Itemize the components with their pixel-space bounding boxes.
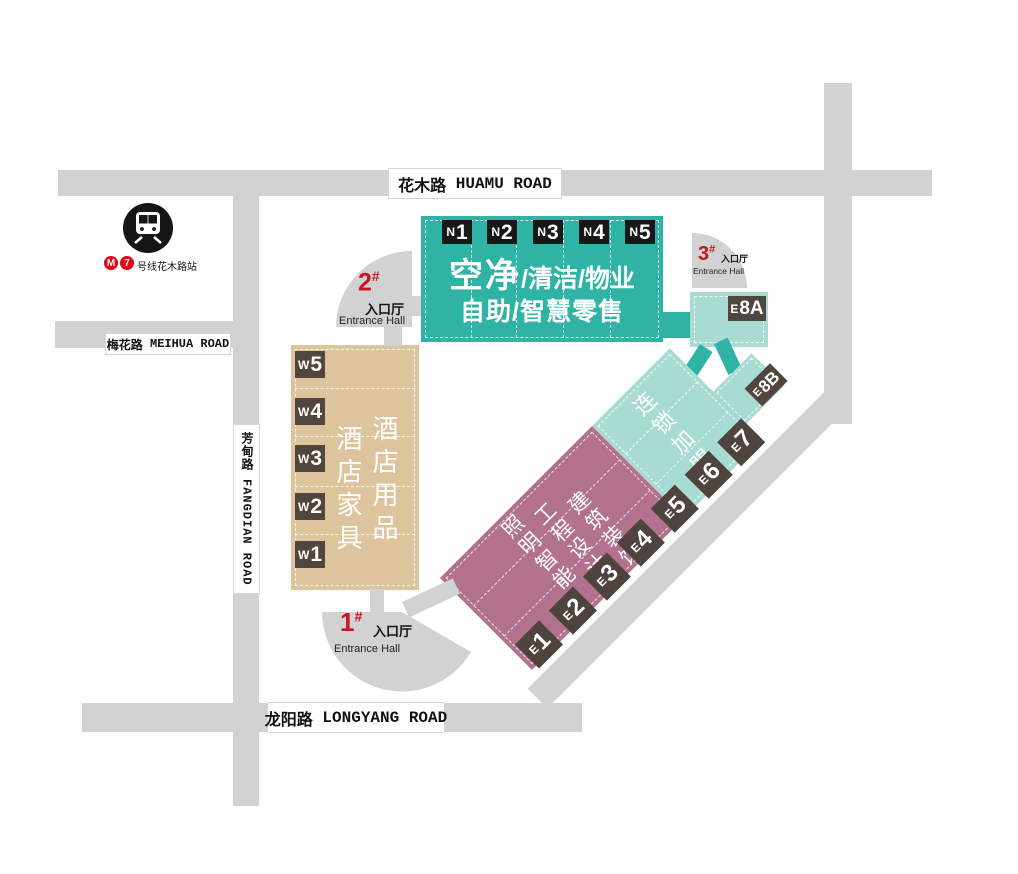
badge-n4: N4 bbox=[579, 220, 609, 244]
train-icon bbox=[123, 203, 173, 253]
metro-line-number: 7 bbox=[124, 258, 130, 269]
entrance1-number: 1# bbox=[340, 609, 362, 635]
badge-w5: W5 bbox=[295, 351, 325, 378]
expo-venue-map: 花木路 HUAMU ROAD 梅花路 MEIHUA ROAD 芳甸路 FANGD… bbox=[0, 0, 1018, 874]
meihua-road-label-en: MEIHUA ROAD bbox=[150, 337, 229, 351]
connector-north-to-e8a bbox=[663, 312, 690, 338]
fangdian-road-label-en: FANGDIAN ROAD bbox=[240, 479, 254, 586]
entrance2-label-en: Entrance Hall bbox=[339, 315, 405, 327]
north-hall-subtitle: 自助/智慧零售 bbox=[421, 292, 663, 328]
entrance1-label-en: Entrance Hall bbox=[334, 643, 400, 655]
west-hall-label-right: 酒店用品 bbox=[371, 415, 397, 547]
longyang-road-label: 龙阳路 LONGYANG ROAD bbox=[267, 702, 445, 733]
badge-n1: N1 bbox=[442, 220, 472, 244]
entrance3-label-en: Entrance Hall bbox=[693, 266, 744, 276]
meihua-road-label: 梅花路 MEIHUA ROAD bbox=[105, 333, 231, 355]
badge-n2: N2 bbox=[487, 220, 517, 244]
west-hall-separator bbox=[295, 388, 415, 389]
entrance-hall-3: 3# 入口厅 Entrance Hall bbox=[688, 228, 756, 290]
badge-e8a: E8A bbox=[728, 296, 766, 321]
entrance-hall-2: 2# 入口厅 Entrance Hall bbox=[328, 248, 416, 330]
entrance3-label-zh: 入口厅 bbox=[721, 252, 748, 265]
entrance-hall-1: 1# 入口厅 Entrance Hall bbox=[318, 585, 478, 695]
entrance3-number: 3# bbox=[698, 244, 715, 264]
fangdian-road-label: 芳甸路 FANGDIAN ROAD bbox=[233, 424, 260, 594]
badge-e8b: E8B bbox=[745, 363, 788, 406]
north-hall-title: 空净/清洁/物业 bbox=[421, 248, 663, 297]
meihua-road-label-zh: 梅花路 bbox=[107, 336, 143, 353]
badge-n3: N3 bbox=[533, 220, 563, 244]
fangdian-road-label-zh: 芳甸路 bbox=[238, 432, 255, 471]
shanghai-metro-logo-icon: M bbox=[104, 256, 118, 270]
metro-line-badge: 7 bbox=[120, 256, 134, 270]
badge-w2: W2 bbox=[295, 493, 325, 520]
hall-e8a: E8A bbox=[690, 292, 768, 347]
entrance1-label-zh: 入口厅 bbox=[373, 621, 412, 640]
entrance2-number: 2# bbox=[358, 270, 380, 295]
northeast-road-vertical bbox=[824, 83, 852, 413]
huamu-road-label-en: HUAMU ROAD bbox=[456, 175, 552, 193]
entrance1-fan-shape bbox=[318, 585, 478, 695]
longyang-road-label-zh: 龙阳路 bbox=[265, 706, 313, 730]
huamu-road-label: 花木路 HUAMU ROAD bbox=[388, 168, 562, 199]
north-hall-title-rest: /清洁/物业 bbox=[521, 265, 635, 293]
huamu-road-label-zh: 花木路 bbox=[398, 172, 446, 196]
badge-n5: N5 bbox=[625, 220, 655, 244]
metro-station-label: 号线花木路站 bbox=[137, 258, 197, 273]
north-hall-title-strong: 空净 bbox=[449, 257, 521, 295]
west-hall-label-left: 酒店家具 bbox=[335, 425, 361, 557]
badge-w4: W4 bbox=[295, 398, 325, 425]
longyang-road-label-en: LONGYANG ROAD bbox=[322, 709, 447, 727]
hall-north: N1 N2 N3 N4 N5 空净/清洁/物业 自助/智慧零售 bbox=[421, 216, 663, 342]
metro-station-icon bbox=[123, 203, 173, 253]
badge-w1: W1 bbox=[295, 541, 325, 568]
hall-west: W5 W4 W3 W2 W1 酒店用品 酒店家具 bbox=[291, 345, 419, 590]
badge-w3: W3 bbox=[295, 445, 325, 472]
